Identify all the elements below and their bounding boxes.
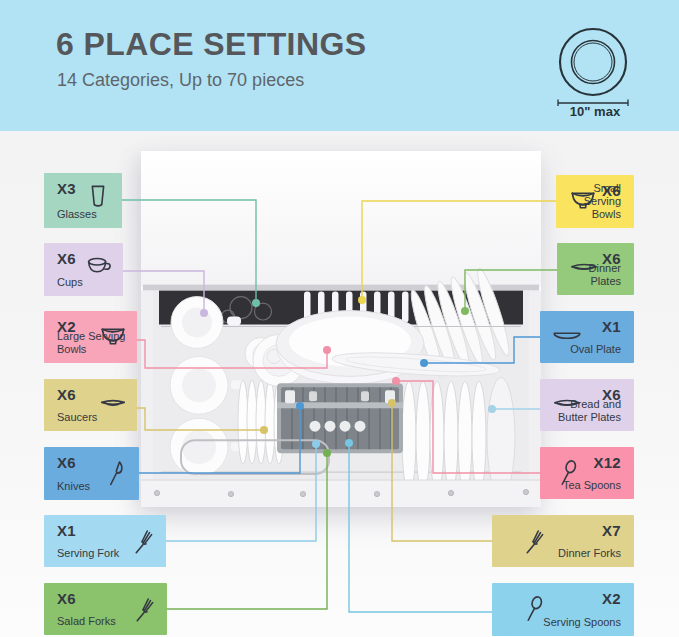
- cups-count: X6: [57, 250, 76, 267]
- knives-count: X6: [57, 454, 76, 471]
- serving-spoons-count: X2: [602, 590, 621, 607]
- serving-spoons-label: Serving Spoons: [496, 616, 621, 629]
- label-box-oval-plate: X1Oval Plate: [540, 311, 634, 363]
- plate-max-size-label: 10" max: [545, 104, 645, 119]
- dinner-forks-label: Dinner Forks: [496, 547, 621, 560]
- dinner-forks-count: X7: [602, 522, 621, 539]
- label-box-salad-forks: X6Salad Forks: [44, 583, 167, 635]
- label-box-small-serving-bowls: X6Small Serving Bowls: [556, 175, 634, 228]
- glasses-label: Glasses: [57, 208, 118, 221]
- tea-spoons-label: Tea Spoons: [544, 479, 621, 492]
- tea-spoons-count: X12: [593, 454, 621, 471]
- label-box-saucers: X6Saucers: [44, 379, 137, 431]
- plate-top-view-icon: [545, 16, 645, 106]
- tub-left-wall: [141, 291, 153, 480]
- page-subtitle: 14 Categories, Up to 70 pieces: [57, 70, 304, 91]
- serving-fork-label: Serving Fork: [57, 547, 162, 560]
- label-box-knives: X6Knives: [44, 447, 139, 500]
- label-box-serving-spoons: X2Serving Spoons: [492, 583, 634, 636]
- label-box-tea-spoons: X12Tea Spoons: [540, 447, 634, 499]
- label-box-dinner-forks: X7Dinner Forks: [492, 515, 634, 567]
- small-serving-bowls-label: Small Serving Bowls: [560, 182, 621, 221]
- utensil-basket: [277, 383, 403, 453]
- label-box-cups: X6Cups: [44, 243, 123, 296]
- oval-plate-label: Oval Plate: [544, 343, 621, 356]
- dishwasher-photo: [141, 151, 541, 507]
- saucers-count: X6: [57, 386, 76, 403]
- cups-label: Cups: [57, 276, 119, 289]
- knives-label: Knives: [57, 480, 135, 493]
- glasses-count: X3: [57, 180, 76, 197]
- salad-forks-label: Salad Forks: [57, 615, 163, 628]
- label-box-serving-fork: X1Serving Fork: [44, 515, 166, 567]
- label-box-bread-and-butter-plates: X6Bread and Butter Plates: [540, 379, 634, 431]
- header: 6 PLACE SETTINGS 14 Categories, Up to 70…: [0, 0, 679, 131]
- tub-front: [141, 480, 541, 507]
- page-title: 6 PLACE SETTINGS: [56, 26, 366, 63]
- place-settings-infographic: 6 PLACE SETTINGS 14 Categories, Up to 70…: [0, 0, 679, 637]
- serving-fork-count: X1: [57, 522, 76, 539]
- salad-forks-count: X6: [57, 590, 76, 607]
- oval-plate-count: X1: [602, 318, 621, 335]
- saucers-label: Saucers: [57, 411, 133, 424]
- label-box-large-serving-bowls: X2Large Serving Bowls: [44, 311, 137, 363]
- dinner-plates-label: Dinner Plates: [561, 262, 621, 288]
- label-box-glasses: X3Glasses: [44, 173, 122, 228]
- dishwasher-top-view: [141, 151, 541, 507]
- label-box-dinner-plates: X6Dinner Plates: [557, 243, 634, 295]
- rack-area: [141, 266, 541, 497]
- bread-and-butter-plates-label: Bread and Butter Plates: [544, 398, 621, 424]
- large-serving-bowls-label: Large Serving Bowls: [57, 330, 133, 356]
